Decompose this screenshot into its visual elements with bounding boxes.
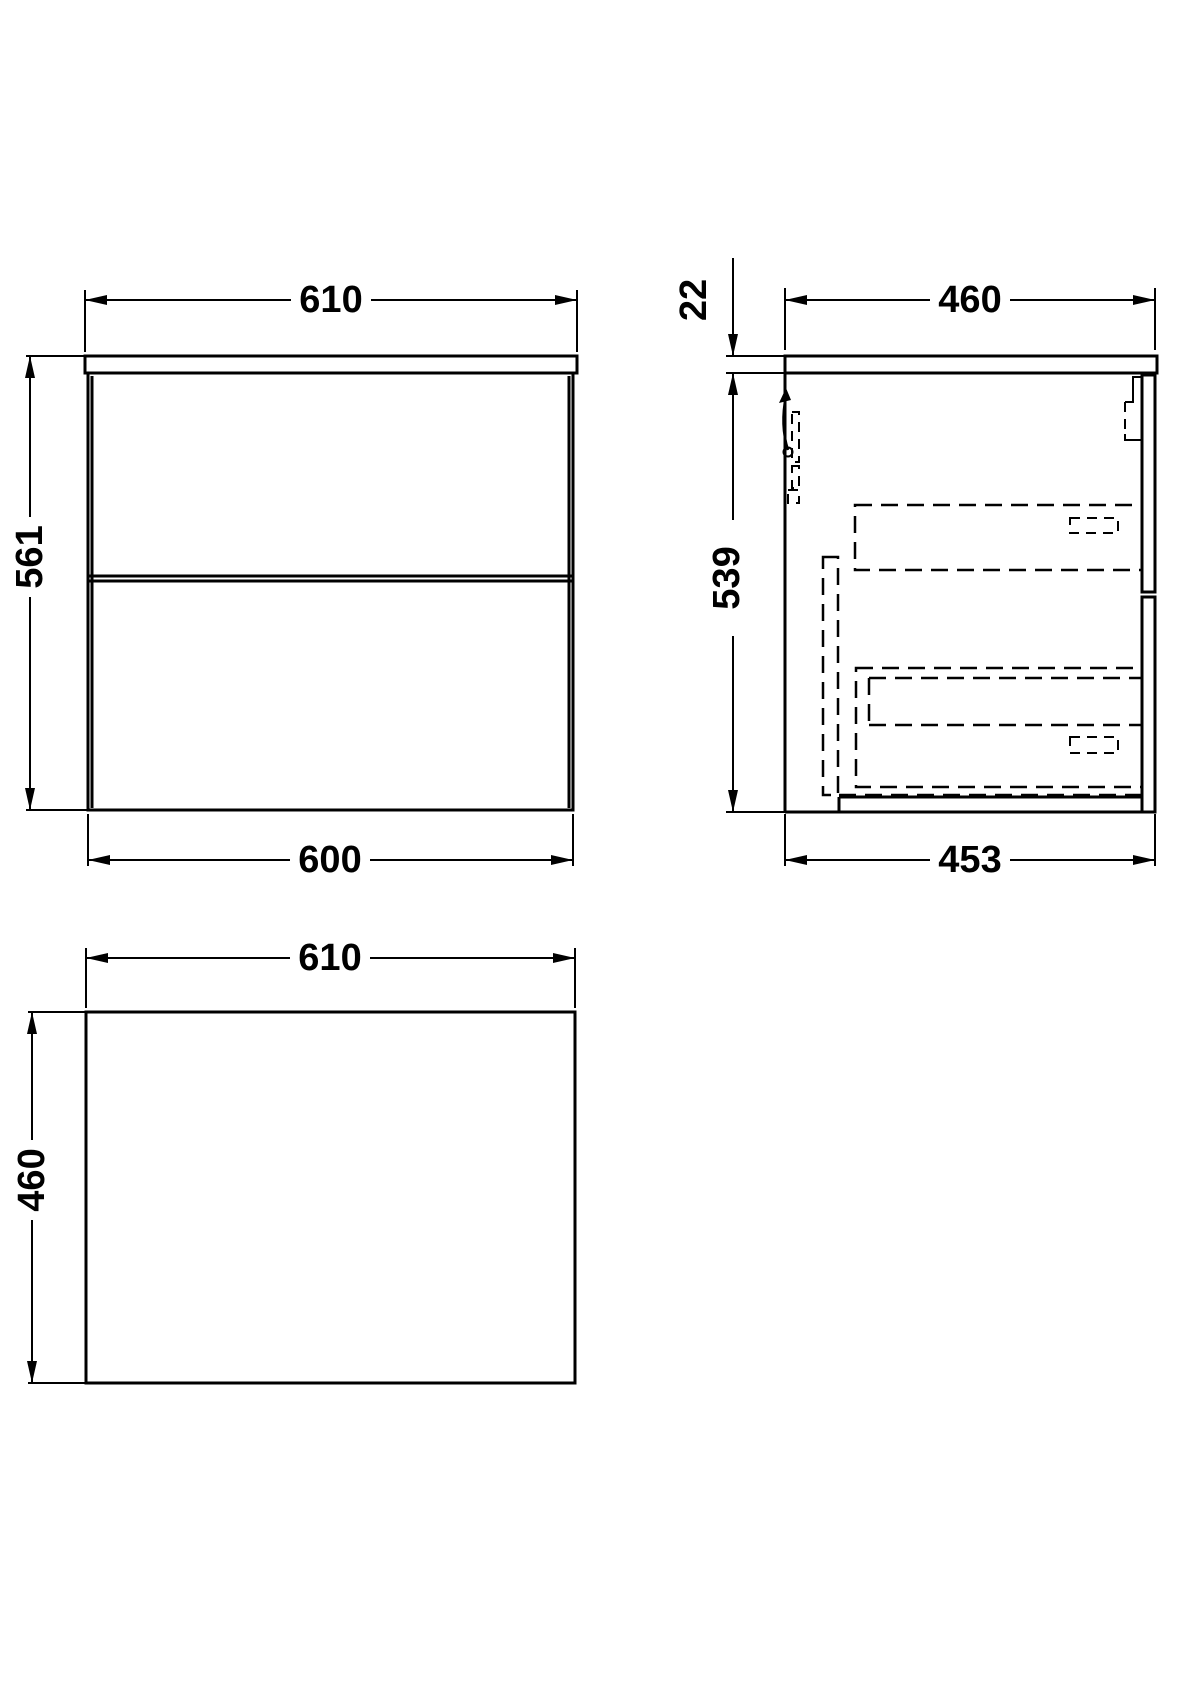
notch-step-top — [1125, 377, 1142, 402]
front-countertop — [85, 356, 577, 373]
dim-front-width-top: 610 — [85, 279, 577, 352]
arrowhead-up — [728, 373, 738, 395]
side-view: 460 22 539 453 — [673, 258, 1157, 881]
arrowhead-left — [88, 855, 110, 865]
upper-drawer-runner — [1070, 518, 1118, 533]
arrowhead-down — [27, 1361, 37, 1383]
dim-label-460-plan: 460 — [11, 1148, 53, 1211]
side-countertop — [785, 356, 1157, 373]
lower-drawer-hidden — [839, 668, 1142, 795]
side-drawer-front-lower — [1142, 597, 1155, 812]
dim-side-depth-bottom: 453 — [785, 814, 1155, 881]
bracket-foot — [788, 490, 799, 503]
arrowhead-left — [86, 953, 108, 963]
arrowhead-right — [555, 295, 577, 305]
arrowhead-left — [785, 295, 807, 305]
technical-drawing: 610 561 600 — [0, 0, 1190, 1684]
dim-label-453: 453 — [938, 839, 1001, 881]
bracket-plate-hidden — [792, 412, 799, 462]
front-view: 610 561 600 — [9, 279, 577, 881]
dim-label-610-plan: 610 — [298, 937, 361, 979]
arrowhead-up — [25, 356, 35, 378]
front-fixing-bracket — [1125, 377, 1142, 440]
hidden-back-upright — [823, 557, 838, 795]
arrowhead-left — [785, 855, 807, 865]
dim-side-height-left: 539 — [706, 373, 785, 812]
upright-hidden-outline — [823, 557, 838, 795]
dim-label-460: 460 — [938, 279, 1001, 321]
arrowhead-down — [25, 788, 35, 810]
dim-plan-depth-left: 460 — [11, 1012, 86, 1383]
arrowhead-left — [85, 295, 107, 305]
upper-drawer-hidden — [855, 505, 1142, 570]
upper-drawer-outline — [855, 505, 1142, 570]
bracket-plate-hidden-lower — [792, 466, 799, 488]
dim-label-600: 600 — [298, 839, 361, 881]
dim-label-610: 610 — [299, 279, 362, 321]
dim-label-539: 539 — [706, 546, 748, 609]
arrowhead-down — [728, 334, 738, 356]
wall-hanging-bracket — [779, 388, 799, 503]
arrowhead-down — [728, 790, 738, 812]
arrowhead-right — [553, 953, 575, 963]
arrowhead-up — [27, 1012, 37, 1034]
dim-front-height-left: 561 — [9, 356, 88, 810]
dim-side-countertop-thickness: 22 — [673, 258, 785, 373]
front-cabinet-body — [88, 373, 573, 810]
notch-step-bottom — [1125, 434, 1142, 440]
dim-plan-width-top: 610 — [86, 937, 575, 1008]
arrowhead-right — [1133, 855, 1155, 865]
arrowhead-right — [1133, 295, 1155, 305]
dim-label-561: 561 — [9, 525, 51, 588]
plan-countertop-outline — [86, 1012, 575, 1383]
lower-drawer-runner — [1070, 737, 1118, 753]
dim-label-22: 22 — [673, 279, 715, 321]
side-drawer-front-upper — [1142, 375, 1155, 592]
dim-front-width-bottom: 600 — [88, 814, 573, 881]
lower-drawer-outline — [856, 668, 1142, 787]
arrowhead-right — [551, 855, 573, 865]
plan-view: 610 460 — [11, 937, 575, 1383]
dim-side-depth-top: 460 — [785, 279, 1155, 350]
